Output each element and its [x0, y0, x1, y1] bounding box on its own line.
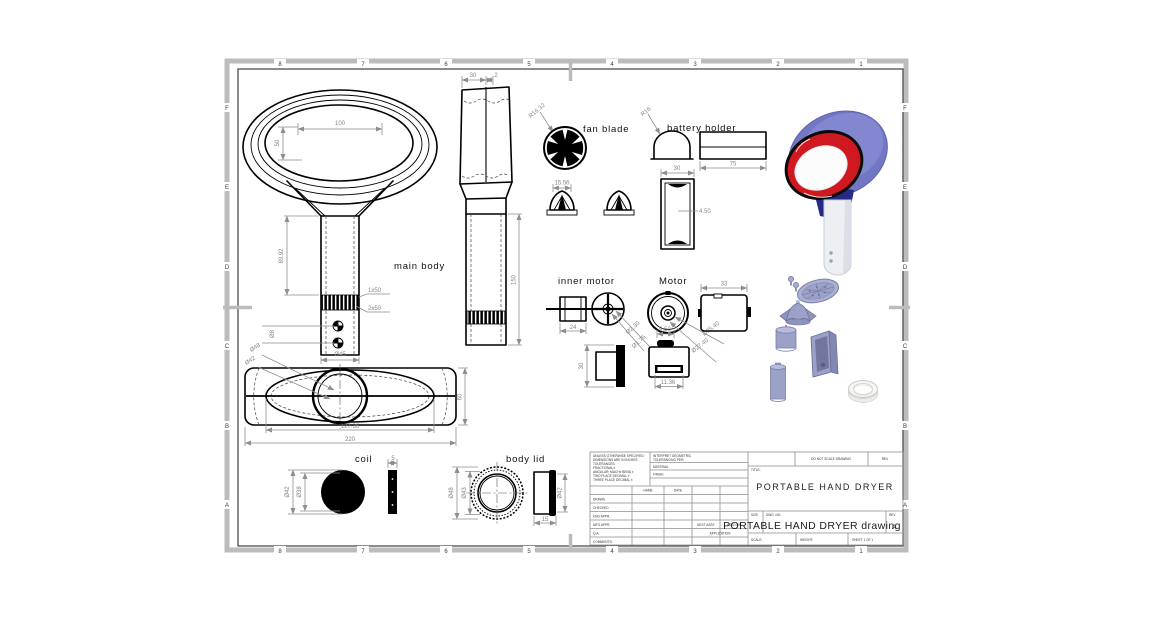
zone-row: A [225, 503, 229, 509]
scale-label: SCALE: [751, 538, 762, 542]
dim-front-height: 89.92 [279, 248, 285, 264]
zone-row: E [225, 185, 229, 191]
knurl-band [322, 295, 358, 310]
row-drawn: DRAWN [593, 498, 606, 502]
view-coil: coil Ø42 Ø38 5 [285, 454, 397, 514]
row-comments: COMMENTS: [593, 540, 613, 544]
dim-lid-depth: 15 [542, 517, 549, 523]
row-eng-appr: ENG APPR. [593, 515, 610, 519]
material-label: MATERIAL [653, 465, 669, 469]
view-body-lid: body lid Ø48 Ø43 Ø42 15 [449, 454, 568, 526]
dim-lid-side-dia: Ø42 [558, 487, 564, 499]
rev-header-label: REV [882, 457, 889, 461]
dim-side-top-width: 30 [470, 73, 477, 79]
dim-top-view-width: 100 [335, 121, 346, 127]
zone-row: C [225, 344, 230, 350]
dim-bottom-opening-len: 127.36 [341, 424, 360, 430]
screw-hole [333, 321, 343, 331]
dim-holder-radius: R16 [640, 106, 653, 118]
dim-fan-hub-width: 15.56 [554, 181, 570, 187]
view-main-body-bottom: Ø48 Ø42 127.36 220 60 [244, 342, 468, 446]
dim-lid-inner-dia: Ø43 [462, 487, 468, 499]
part-impeller [780, 300, 816, 325]
weight-label: WEIGHT: [800, 538, 813, 542]
dim-bottom-depth: 60 [458, 393, 464, 400]
dim-motor-dia1: Ø25.40 [702, 320, 722, 337]
dim-inner-motor-height: 30 [579, 362, 585, 369]
fan-blade-profile [547, 191, 577, 215]
drawing-number: PORTABLE HAND DRYER drawing [723, 520, 901, 532]
view-fan-blade: fan blade R16.32 15.56 [528, 102, 634, 215]
zone-row: E [903, 185, 907, 191]
dim-coil-inner-dia: Ø38 [297, 486, 303, 498]
dwg-no-label: DWG. NO. [766, 513, 781, 517]
dim-inner-shaft-dia1: Ø2.30 [625, 320, 642, 336]
part-screws [788, 276, 798, 291]
dim-coil-outer-dia: Ø42 [285, 486, 291, 498]
dim-side-handle-len: 150 [512, 274, 518, 285]
row-qa: Q.A. [593, 532, 599, 536]
knurl-band [467, 311, 505, 324]
drawing-sheet: 8 7 6 5 4 3 2 1 8 7 6 5 4 3 2 1 F E D C … [0, 0, 1150, 629]
dim-bottom-total-len: 220 [345, 437, 356, 443]
rev-label: REV [889, 513, 896, 517]
dim-side-wall: 2 [494, 73, 498, 79]
part-battery [771, 363, 786, 402]
part-motor-cylinder [776, 325, 796, 351]
view-battery-holder: battery holder R16 75 30 4.50 [640, 106, 766, 249]
sheet-label: SHEET 1 OF 1 [852, 538, 873, 542]
zone-row: D [903, 265, 908, 271]
dim-motor-dia2: Ø27.40 [691, 337, 711, 354]
dim-inner-motor-len: 24 [570, 325, 577, 331]
screw-hole [333, 338, 343, 348]
title-block: UNLESS OTHERWISE SPECIFIED: DIMENSIONS A… [590, 452, 903, 545]
fan-blade-front [544, 127, 586, 169]
title-label: TITLE: [751, 468, 761, 472]
zone-row: B [225, 424, 229, 430]
part-holder-box [811, 331, 838, 377]
dim-motor-len: 33 [721, 282, 728, 288]
dim-coil-thickness: 5 [391, 456, 395, 462]
part-label-body-lid: body lid [506, 454, 545, 465]
view-inner-motor: inner motor 24 Ø2.30 Ø1.75 30 [546, 276, 650, 387]
view-main-body-side: 30 2 150 [460, 73, 522, 345]
part-label-inner-motor: inner motor [558, 276, 615, 287]
interpret-note2: TOLERANCING PER: [653, 458, 684, 462]
dim-bottom-outer-dia: Ø48 [249, 342, 262, 354]
next-assy-label: NEXT ASSY [697, 523, 716, 527]
view-main-body-front: 89.92 Ø8 Ø45 1x50 2x50 main body [262, 181, 445, 364]
rev-value: A [892, 524, 897, 531]
dim-bottom-inner-dia: Ø42 [244, 355, 257, 367]
do-not-scale-label: DO NOT SCALE DRAWING [811, 457, 851, 461]
dim-lid-outer-dia: Ø48 [449, 487, 455, 499]
dim-holder-width: 30 [674, 166, 681, 172]
part-label-coil: coil [355, 454, 372, 465]
part-label-main-body: main body [394, 261, 445, 272]
zone-row: F [903, 106, 907, 112]
dim-front-handle-dia: Ø45 [334, 352, 346, 358]
drawing-title: PORTABLE HAND DRYER [756, 482, 894, 492]
row-mfg-appr: MFG APPR. [593, 523, 610, 527]
finish-label: FINISH [653, 473, 664, 477]
zone-row: A [903, 503, 907, 509]
name-header: NAME [643, 489, 652, 493]
dim-fan-radius: R16.32 [528, 102, 547, 119]
zone-row: F [225, 106, 229, 112]
zone-row: D [225, 265, 230, 271]
application-label: APPLICATION [710, 532, 732, 536]
part-lid-ring [849, 381, 878, 403]
dim-holder-wall: 4.50 [699, 209, 711, 215]
dim-holder-len: 75 [730, 162, 737, 168]
dim-motor-slot: 11.36 [661, 380, 676, 386]
view-main-body-top: 100 50 [243, 90, 437, 204]
part-label-fan-blade: fan blade [583, 124, 629, 135]
dim-front-knurl2: 2x50 [368, 306, 382, 312]
render-exploded-parts [771, 275, 878, 402]
zone-row: B [903, 424, 907, 430]
zone-row: C [903, 344, 908, 350]
dim-top-view-height: 50 [275, 139, 281, 146]
view-motor: Motor Ø25.40 Ø27.40 33 9.50 11.36 [648, 276, 751, 389]
dim-front-knurl1: 1x50 [368, 288, 382, 294]
dim-motor-boss: 9.50 [659, 327, 671, 333]
fan-blade-profile [604, 191, 634, 215]
part-label-motor: Motor [659, 276, 687, 287]
dim-front-hole: Ø8 [270, 329, 276, 338]
date-header: DATE [674, 489, 682, 493]
row-checked: CHECKED [593, 506, 609, 510]
render-assembled-dryer [774, 95, 901, 275]
drawing-canvas: 8 7 6 5 4 3 2 1 8 7 6 5 4 3 2 1 F E D C … [0, 0, 1150, 629]
size-label: SIZE [751, 513, 758, 517]
tolerance-line: THREE PLACE DECIMAL ± [593, 478, 633, 482]
tolerance-note: UNLESS OTHERWISE SPECIFIED: DIMENSIONS A… [593, 454, 645, 482]
part-mesh-disc [795, 275, 841, 307]
